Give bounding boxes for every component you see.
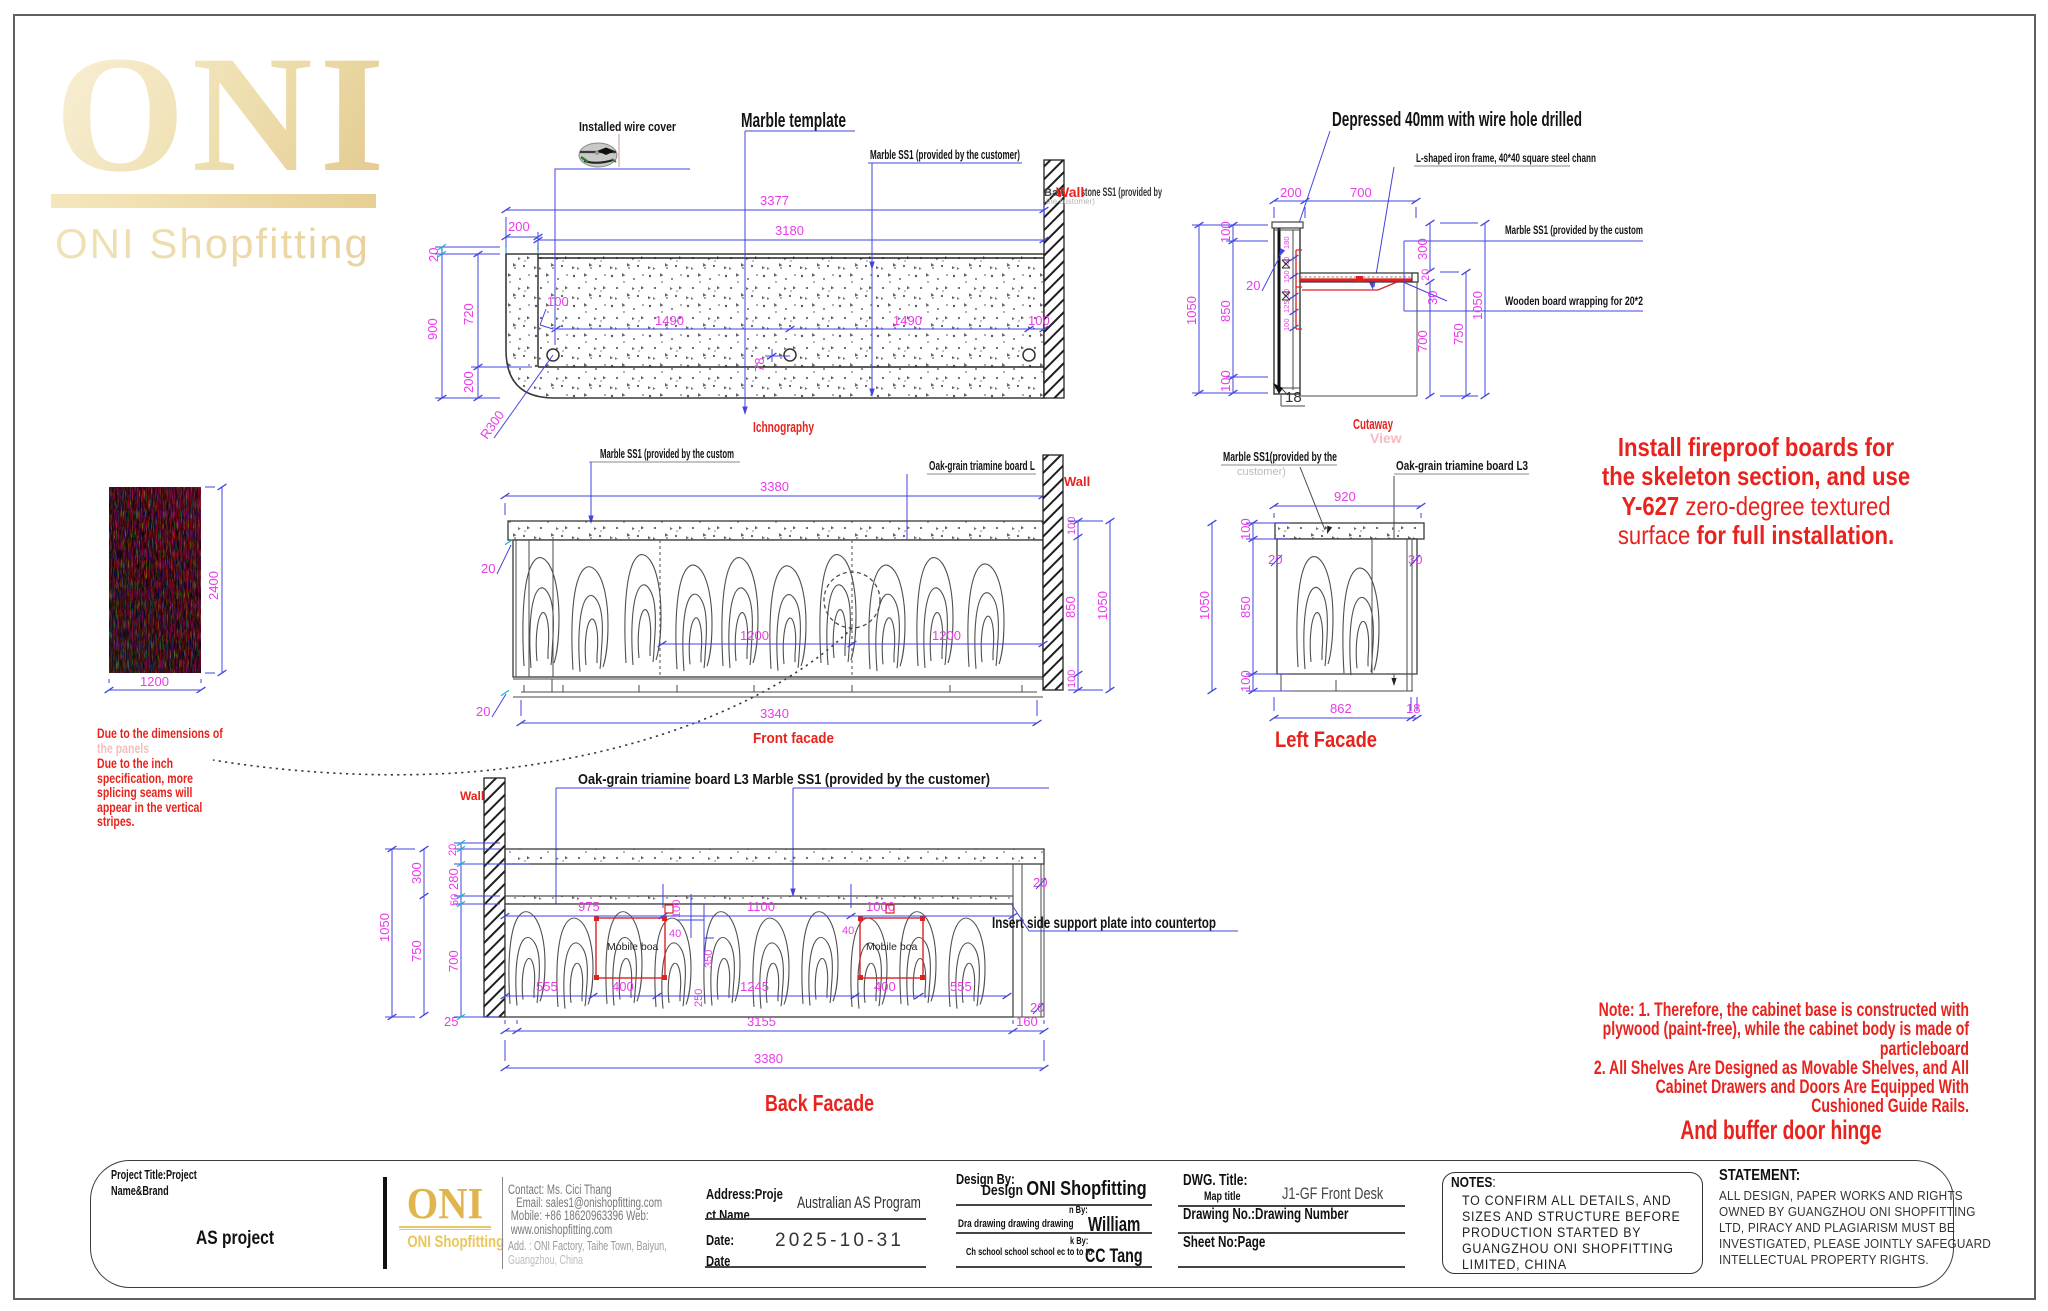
svg-text:R300: R300 xyxy=(477,408,507,442)
svg-text:200: 200 xyxy=(1280,185,1302,200)
svg-text:Back Facade: Back Facade xyxy=(765,1090,874,1116)
svg-text:555: 555 xyxy=(536,979,558,994)
svg-text:78: 78 xyxy=(752,358,767,372)
svg-text:18: 18 xyxy=(1406,701,1420,716)
svg-text:700: 700 xyxy=(1415,330,1430,352)
svg-text:700: 700 xyxy=(1350,185,1372,200)
svg-text:1100: 1100 xyxy=(747,899,775,914)
svg-text:View: View xyxy=(1370,430,1402,446)
svg-text:100: 100 xyxy=(1282,318,1291,331)
svg-text:Mobile boa: Mobile boa xyxy=(607,941,659,953)
svg-text:250: 250 xyxy=(693,989,705,1007)
svg-text:Depressed 40mm with wire hole: Depressed 40mm with wire hole drilled xyxy=(1332,109,1582,131)
svg-text:1000: 1000 xyxy=(866,899,895,914)
svg-text:Oak-grain triamine board L3 Ma: Oak-grain triamine board L3 Marble SS1 (… xyxy=(578,771,990,788)
svg-text:Ichnography: Ichnography xyxy=(753,419,814,436)
svg-text:Marble SS1 (provided by the cu: Marble SS1 (provided by the custom xyxy=(1505,223,1643,237)
svg-text:Marble SS1 (provided by the cu: Marble SS1 (provided by the customer) xyxy=(870,147,1020,162)
svg-text:Insert side support plate into: Insert side support plate into counterto… xyxy=(992,915,1216,932)
svg-text:1200: 1200 xyxy=(140,674,169,689)
svg-text:100: 100 xyxy=(1028,313,1050,328)
svg-text:Left Facade: Left Facade xyxy=(1275,727,1377,752)
svg-text:100: 100 xyxy=(1066,517,1078,535)
svg-text:50: 50 xyxy=(449,894,461,906)
svg-text:20: 20 xyxy=(1246,278,1260,293)
svg-text:40: 40 xyxy=(842,925,854,937)
svg-text:20: 20 xyxy=(476,704,490,719)
svg-text:18: 18 xyxy=(1285,389,1302,406)
svg-text:100: 100 xyxy=(1238,518,1253,540)
svg-text:862: 862 xyxy=(1330,701,1352,716)
svg-text:1050: 1050 xyxy=(1184,296,1199,325)
svg-text:Wooden board wrapping for 20*2: Wooden board wrapping for 20*2 xyxy=(1505,294,1643,308)
svg-text:200: 200 xyxy=(461,371,476,393)
svg-text:180: 180 xyxy=(1282,236,1291,249)
svg-text:20: 20 xyxy=(1268,552,1282,567)
svg-text:3340: 3340 xyxy=(760,706,789,721)
svg-text:975: 975 xyxy=(578,899,600,914)
svg-text:20: 20 xyxy=(1030,1000,1044,1015)
svg-text:20: 20 xyxy=(1033,875,1047,890)
svg-text:customer): customer) xyxy=(1237,466,1286,478)
svg-text:Marble template: Marble template xyxy=(741,110,846,132)
svg-text:350: 350 xyxy=(703,950,715,968)
svg-text:40: 40 xyxy=(669,928,681,940)
svg-text:Mobile boa: Mobile boa xyxy=(866,941,918,953)
svg-text:850: 850 xyxy=(1238,596,1253,618)
svg-text:100: 100 xyxy=(1218,221,1233,243)
svg-text:Wall: Wall xyxy=(1056,184,1084,200)
svg-text:Oak-grain triamine board L: Oak-grain triamine board L xyxy=(929,458,1035,473)
svg-text:Wall: Wall xyxy=(460,789,484,803)
svg-text:150: 150 xyxy=(1282,270,1291,283)
svg-text:20: 20 xyxy=(1420,269,1432,281)
svg-text:1490: 1490 xyxy=(655,313,684,328)
svg-text:3377: 3377 xyxy=(760,193,789,208)
svg-text:20: 20 xyxy=(447,844,459,856)
svg-text:160: 160 xyxy=(1016,1014,1038,1029)
svg-text:30: 30 xyxy=(1425,291,1440,305)
svg-text:125: 125 xyxy=(1282,300,1291,313)
svg-text:400: 400 xyxy=(874,979,896,994)
svg-text:720: 720 xyxy=(461,303,476,325)
svg-text:20: 20 xyxy=(481,561,495,576)
svg-text:400: 400 xyxy=(612,979,634,994)
svg-text:100: 100 xyxy=(671,900,683,918)
svg-text:Installed wire cover: Installed wire cover xyxy=(579,119,676,134)
svg-text:300: 300 xyxy=(1415,238,1430,260)
svg-text:920: 920 xyxy=(1334,489,1356,504)
svg-text:900: 900 xyxy=(425,318,440,340)
svg-text:555: 555 xyxy=(950,979,972,994)
svg-text:1490: 1490 xyxy=(893,313,922,328)
svg-text:1050: 1050 xyxy=(1470,291,1485,320)
svg-text:750: 750 xyxy=(1451,323,1466,345)
svg-text:750: 750 xyxy=(409,940,424,962)
svg-text:700: 700 xyxy=(446,950,461,972)
svg-text:Front facade: Front facade xyxy=(753,730,834,747)
svg-text:100: 100 xyxy=(1238,670,1253,692)
svg-text:100: 100 xyxy=(1218,370,1233,392)
svg-text:100: 100 xyxy=(547,294,569,309)
svg-text:1050: 1050 xyxy=(377,913,392,942)
svg-text:1200: 1200 xyxy=(740,628,769,643)
svg-text:3380: 3380 xyxy=(754,1051,783,1066)
svg-text:20: 20 xyxy=(426,248,441,262)
svg-text:1050: 1050 xyxy=(1095,591,1110,620)
svg-text:Oak-grain triamine board L3: Oak-grain triamine board L3 xyxy=(1396,458,1528,473)
svg-text:1050: 1050 xyxy=(1197,591,1212,620)
svg-text:280: 280 xyxy=(446,868,461,890)
svg-text:Marble SS1 (provided by the cu: Marble SS1 (provided by the custom xyxy=(600,446,734,461)
svg-text:3380: 3380 xyxy=(760,479,789,494)
svg-text:Wall: Wall xyxy=(1064,474,1090,489)
svg-text:L-shaped iron frame, 40*40 squ: L-shaped iron frame, 40*40 square steel … xyxy=(1416,151,1596,165)
svg-text:100: 100 xyxy=(1066,670,1078,688)
svg-text:200: 200 xyxy=(508,219,530,234)
svg-text:850: 850 xyxy=(1063,596,1078,618)
svg-text:Marble SS1(provided by the: Marble SS1(provided by the xyxy=(1223,449,1337,464)
svg-text:1200: 1200 xyxy=(932,628,961,643)
svg-text:3155: 3155 xyxy=(747,1014,776,1029)
svg-text:300: 300 xyxy=(409,862,424,884)
svg-text:1245: 1245 xyxy=(740,979,769,994)
svg-text:25: 25 xyxy=(444,1014,458,1029)
svg-text:850: 850 xyxy=(1218,300,1233,322)
svg-text:3180: 3180 xyxy=(775,223,804,238)
svg-text:2400: 2400 xyxy=(206,571,221,600)
